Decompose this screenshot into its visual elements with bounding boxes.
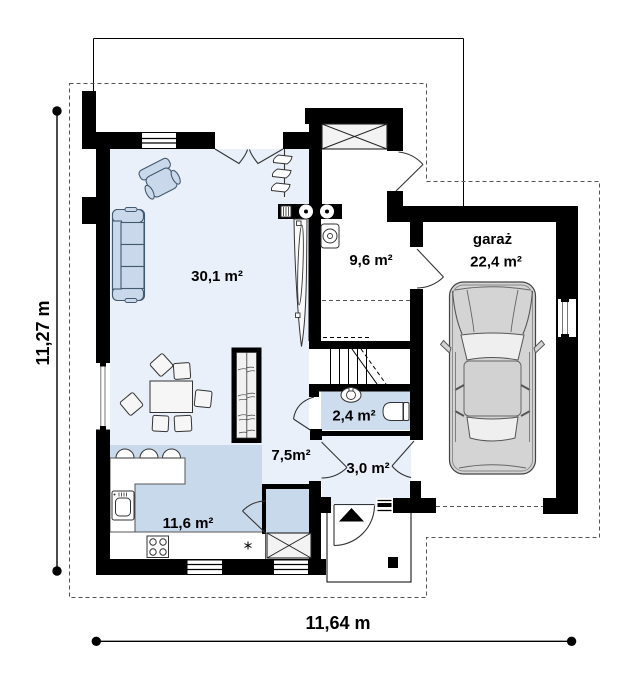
svg-text:garaż: garaż xyxy=(473,231,512,248)
svg-text:30,1 m²: 30,1 m² xyxy=(191,268,243,285)
svg-text:22,4 m²: 22,4 m² xyxy=(470,254,522,271)
svg-text:7,5m²: 7,5m² xyxy=(271,447,310,464)
svg-text:3,0 m²: 3,0 m² xyxy=(346,460,389,477)
svg-text:11,64 m: 11,64 m xyxy=(305,613,370,633)
svg-text:11,6 m²: 11,6 m² xyxy=(163,515,214,532)
svg-text:11,27 m: 11,27 m xyxy=(33,300,53,365)
svg-text:2,4 m²: 2,4 m² xyxy=(332,408,375,425)
svg-text:9,6 m²: 9,6 m² xyxy=(349,252,392,269)
